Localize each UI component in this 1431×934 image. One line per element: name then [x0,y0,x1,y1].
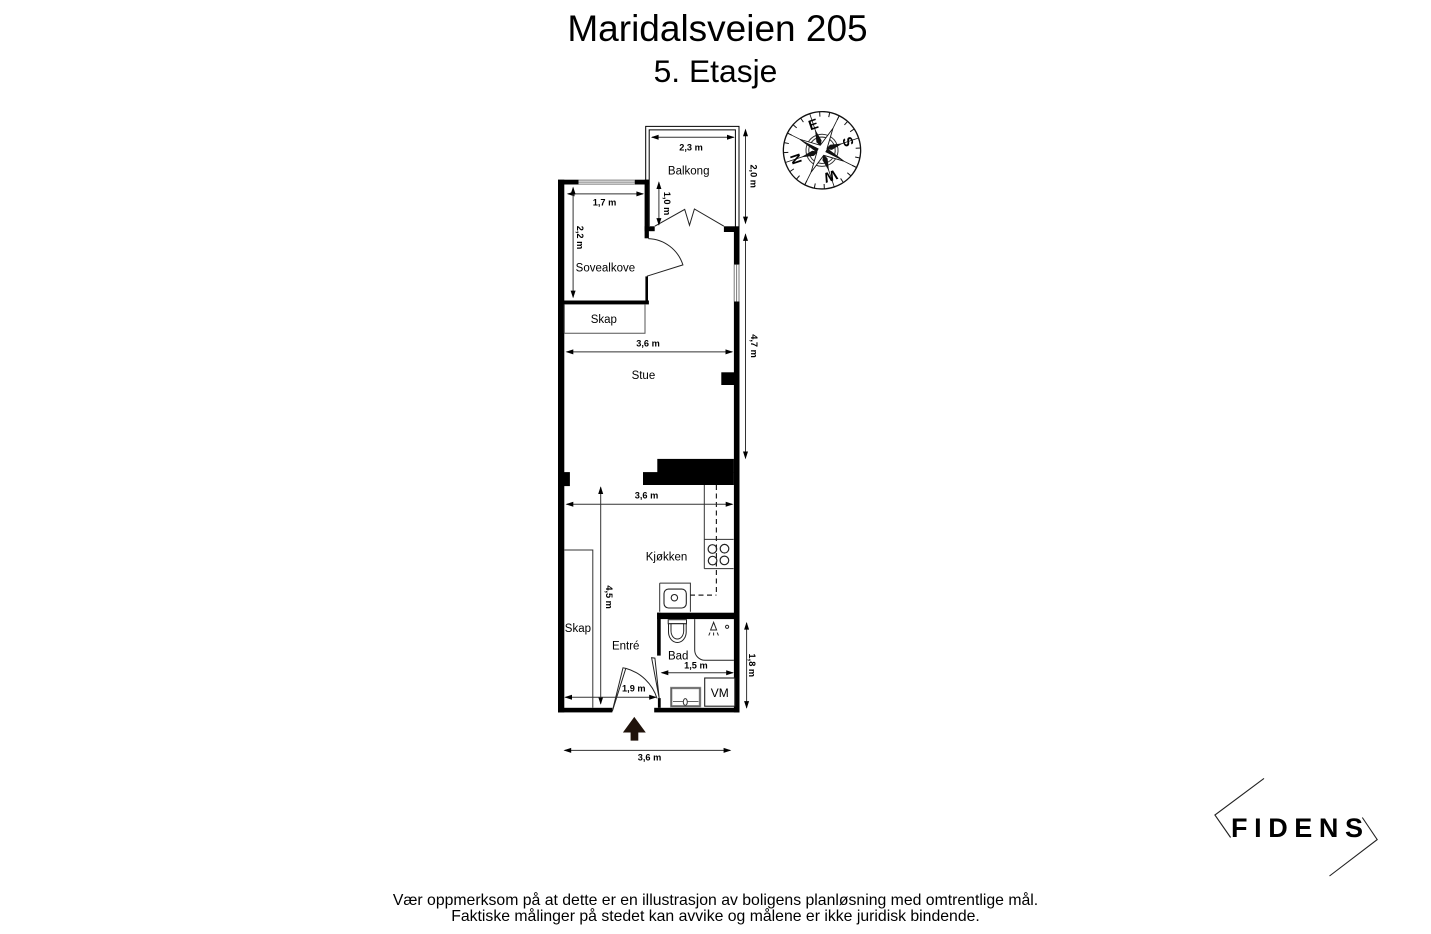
svg-text:Entré: Entré [612,641,640,653]
svg-text:FIDENS: FIDENS [1231,813,1363,843]
svg-text:Stue: Stue [632,370,656,382]
svg-text:VM: VM [711,686,729,700]
svg-text:4,5 m: 4,5 m [604,585,614,609]
svg-text:1,8 m: 1,8 m [747,654,757,678]
svg-text:3,6 m: 3,6 m [636,338,660,348]
svg-text:1,0 m: 1,0 m [662,192,672,216]
svg-text:1,7 m: 1,7 m [593,197,617,207]
svg-text:2,3 m: 2,3 m [679,142,703,152]
svg-text:N: N [787,152,805,167]
svg-text:S: S [839,135,857,149]
svg-text:Bad: Bad [668,651,688,663]
svg-text:3,6 m: 3,6 m [635,490,659,500]
svg-text:W: W [821,167,839,187]
svg-text:Balkong: Balkong [668,166,710,178]
svg-text:Kjøkken: Kjøkken [646,552,688,564]
svg-text:Sovealkove: Sovealkove [576,263,635,275]
svg-text:E: E [806,115,820,133]
svg-text:2,0 m: 2,0 m [748,164,758,188]
svg-text:2,2 m: 2,2 m [575,226,585,250]
svg-text:3,6 m: 3,6 m [638,753,662,763]
svg-text:Skap: Skap [591,314,617,326]
svg-text:1,9 m: 1,9 m [622,684,646,694]
svg-text:4,7 m: 4,7 m [749,334,759,358]
svg-text:Skap: Skap [565,623,591,635]
